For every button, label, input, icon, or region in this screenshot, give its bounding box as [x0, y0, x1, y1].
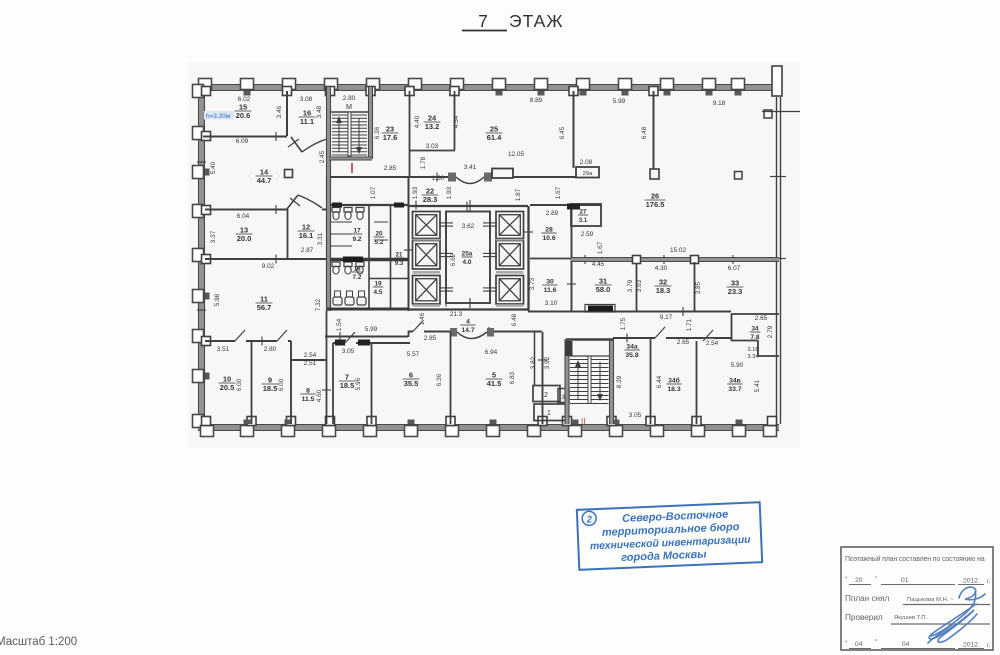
- svg-text:2.45: 2.45: [319, 150, 326, 163]
- svg-text:11.6: 11.6: [544, 287, 557, 294]
- svg-text:6.36: 6.36: [436, 373, 443, 386]
- svg-text:2.85: 2.85: [384, 165, 397, 172]
- svg-text:Якушев Т.П.: Якушев Т.П.: [894, 615, 927, 621]
- svg-text:41.5: 41.5: [487, 379, 502, 388]
- svg-text:4.5: 4.5: [374, 289, 383, 296]
- svg-text:II: II: [581, 417, 585, 426]
- svg-text:2.51: 2.51: [304, 360, 317, 367]
- svg-text:28: 28: [545, 227, 553, 234]
- svg-text:Поэтажный план составлен по со: Поэтажный план составлен по состоянию на: [845, 555, 985, 563]
- svg-text:2.08: 2.08: [580, 159, 593, 166]
- svg-text:35.8: 35.8: [625, 352, 638, 359]
- svg-text:2012: 2012: [963, 578, 978, 585]
- svg-text:3.73: 3.73: [529, 277, 536, 290]
- svg-text:ЭТАЖ: ЭТАЖ: [509, 11, 564, 31]
- svg-text:34а: 34а: [626, 344, 638, 351]
- svg-text:6.00: 6.00: [278, 378, 285, 391]
- svg-text:4.0: 4.0: [463, 259, 472, 266]
- svg-text:23.3: 23.3: [728, 287, 743, 296]
- svg-text:h=3.20м: h=3.20м: [206, 113, 230, 120]
- svg-text:9.2: 9.2: [353, 236, 362, 243]
- svg-text:6.04: 6.04: [237, 213, 250, 220]
- svg-text:3.82: 3.82: [530, 356, 537, 369]
- svg-text:10.6: 10.6: [542, 235, 555, 242]
- svg-text:1.67: 1.67: [597, 241, 604, 254]
- svg-text:3.85: 3.85: [695, 281, 702, 294]
- svg-text:4.40: 4.40: [414, 115, 421, 128]
- svg-text:1.54: 1.54: [336, 318, 343, 331]
- svg-text:8: 8: [306, 388, 310, 395]
- svg-text:3.10: 3.10: [545, 300, 558, 307]
- svg-text:2.80: 2.80: [264, 346, 277, 353]
- svg-text:7.32: 7.32: [315, 298, 322, 311]
- svg-text:3.18: 3.18: [747, 347, 758, 353]
- svg-text:3: 3: [561, 394, 565, 401]
- svg-text:3.34: 3.34: [747, 354, 759, 360]
- svg-text:34: 34: [751, 326, 759, 333]
- svg-text:16.1: 16.1: [299, 231, 314, 240]
- svg-text:11.1: 11.1: [300, 117, 314, 126]
- svg-text:3.05: 3.05: [342, 348, 355, 355]
- svg-text:01: 01: [901, 577, 909, 584]
- svg-text:5.90: 5.90: [731, 362, 744, 369]
- svg-text:61.4: 61.4: [487, 133, 502, 142]
- svg-text:6.02: 6.02: [238, 96, 251, 103]
- svg-text:9.02: 9.02: [262, 263, 275, 270]
- svg-text:2: 2: [544, 392, 548, 399]
- svg-text:3.92: 3.92: [544, 356, 551, 369]
- svg-text:1.93: 1.93: [412, 186, 419, 199]
- svg-text:1.07: 1.07: [370, 186, 377, 199]
- svg-text:М: М: [346, 102, 352, 111]
- svg-text:3.79: 3.79: [627, 279, 634, 292]
- svg-text:56.7: 56.7: [257, 303, 272, 312]
- svg-text:2.54: 2.54: [304, 352, 317, 359]
- svg-text:4.45: 4.45: [592, 261, 605, 268]
- svg-text:8.39: 8.39: [616, 375, 623, 388]
- svg-text:18.3: 18.3: [667, 386, 680, 393]
- svg-text:6.09: 6.09: [236, 138, 249, 145]
- svg-text:3.05: 3.05: [629, 412, 642, 419]
- svg-text:29а: 29а: [583, 171, 593, 177]
- svg-text:04: 04: [855, 641, 863, 648]
- svg-text:4.60: 4.60: [316, 389, 323, 402]
- svg-text:6.36: 6.36: [374, 126, 381, 139]
- svg-text:2.80: 2.80: [343, 95, 356, 102]
- svg-text:г.: г.: [987, 642, 991, 649]
- svg-text:6.45: 6.45: [559, 126, 566, 139]
- svg-text:18.3: 18.3: [656, 286, 671, 295]
- svg-text:9.17: 9.17: [660, 314, 673, 321]
- svg-text:3.31: 3.31: [317, 232, 324, 245]
- svg-text:2.89: 2.89: [546, 210, 559, 217]
- svg-text:3.08: 3.08: [300, 96, 313, 103]
- svg-text:1: 1: [547, 410, 551, 417]
- svg-text:6.00: 6.00: [236, 378, 243, 391]
- svg-text:3.63: 3.63: [636, 279, 643, 292]
- svg-text:20.6: 20.6: [236, 111, 251, 120]
- svg-text:2: 2: [585, 514, 592, 525]
- svg-text:14.7: 14.7: [461, 327, 474, 334]
- svg-text:04: 04: [902, 641, 910, 648]
- svg-text:2.85: 2.85: [424, 335, 437, 342]
- svg-text:5.57: 5.57: [407, 351, 420, 358]
- svg-text:4.30: 4.30: [655, 265, 668, 272]
- svg-text:6.62: 6.62: [450, 253, 457, 266]
- svg-text:6.44: 6.44: [656, 375, 663, 388]
- svg-text:7.8: 7.8: [751, 334, 760, 341]
- svg-text:17: 17: [353, 228, 361, 235]
- svg-text:20.5: 20.5: [220, 383, 235, 392]
- svg-text:5.96: 5.96: [355, 377, 362, 390]
- svg-text:4: 4: [466, 319, 470, 326]
- svg-text:2.65: 2.65: [755, 315, 768, 322]
- svg-text:5.2: 5.2: [375, 239, 384, 246]
- svg-text:2.65: 2.65: [677, 339, 690, 346]
- svg-text:2.54: 2.54: [706, 340, 719, 347]
- svg-text:6.07: 6.07: [728, 265, 741, 272]
- svg-text:6.83: 6.83: [509, 371, 516, 384]
- svg-text:3.41: 3.41: [464, 164, 477, 171]
- svg-text:6.48: 6.48: [641, 126, 648, 139]
- svg-text:20.0: 20.0: [237, 234, 252, 243]
- svg-text:2012: 2012: [963, 642, 978, 649]
- svg-text:9.18: 9.18: [713, 100, 726, 107]
- svg-text:33.7: 33.7: [728, 386, 741, 393]
- svg-text:Масштаб 1:200: Масштаб 1:200: [0, 636, 77, 648]
- svg-text:20: 20: [855, 577, 863, 584]
- svg-text:2.87: 2.87: [301, 247, 314, 254]
- svg-text:2.59: 2.59: [581, 231, 594, 238]
- svg-text:20: 20: [375, 231, 383, 238]
- svg-text:5.40: 5.40: [210, 161, 217, 174]
- svg-text:”: ”: [875, 639, 877, 646]
- svg-text:1.75: 1.75: [620, 317, 627, 330]
- svg-text:г.: г.: [987, 578, 991, 585]
- svg-text:12.05: 12.05: [508, 151, 524, 158]
- svg-text:6.48: 6.48: [511, 313, 518, 326]
- svg-text:21.3: 21.3: [450, 311, 463, 318]
- svg-text:11.5: 11.5: [302, 396, 315, 403]
- svg-text:2.79: 2.79: [767, 325, 774, 338]
- svg-text:6.94: 6.94: [485, 349, 498, 356]
- svg-text:“: “: [845, 576, 847, 583]
- svg-text:58.0: 58.0: [596, 285, 611, 294]
- svg-text:7.2: 7.2: [353, 274, 362, 281]
- svg-text:25а: 25а: [462, 251, 473, 258]
- svg-text:13.2: 13.2: [425, 122, 440, 131]
- svg-text:1.30: 1.30: [432, 175, 445, 182]
- svg-text:44.7: 44.7: [257, 176, 272, 185]
- svg-text:3.37: 3.37: [210, 230, 217, 243]
- svg-text:1.71: 1.71: [686, 318, 693, 331]
- svg-text:5.98: 5.98: [214, 293, 221, 306]
- svg-text:1.87: 1.87: [515, 188, 522, 201]
- svg-text:1.67: 1.67: [555, 186, 562, 199]
- svg-text:18: 18: [353, 266, 361, 273]
- svg-text:35.5: 35.5: [404, 379, 419, 388]
- svg-text:28.3: 28.3: [423, 195, 438, 204]
- svg-text:34б: 34б: [668, 377, 680, 385]
- svg-text:Проверил: Проверил: [845, 613, 883, 622]
- svg-text:5.99: 5.99: [613, 98, 626, 105]
- svg-text:“: “: [845, 640, 847, 647]
- svg-text:3.03: 3.03: [426, 143, 439, 150]
- svg-text:8.89: 8.89: [530, 97, 543, 104]
- svg-text:30: 30: [546, 279, 554, 286]
- svg-text:1.46: 1.46: [419, 312, 426, 325]
- svg-text:34в: 34в: [729, 378, 741, 385]
- svg-text:17.6: 17.6: [383, 133, 398, 142]
- svg-text:19: 19: [374, 281, 382, 288]
- svg-text:9.3: 9.3: [395, 261, 404, 267]
- svg-text:Пплан снял: Пплан снял: [845, 594, 889, 603]
- svg-text:18.5: 18.5: [263, 384, 278, 393]
- svg-text:15.02: 15.02: [670, 247, 686, 254]
- svg-text:”: ”: [875, 576, 877, 583]
- svg-text:5.41: 5.41: [754, 379, 761, 392]
- svg-text:3.1: 3.1: [579, 218, 588, 224]
- svg-text:3.62: 3.62: [462, 223, 475, 230]
- svg-text:3.48: 3.48: [316, 105, 323, 118]
- svg-text:7: 7: [478, 11, 488, 31]
- svg-text:4.54: 4.54: [453, 115, 460, 128]
- svg-text:3.46: 3.46: [276, 105, 283, 118]
- svg-text:1.78: 1.78: [420, 156, 427, 169]
- svg-text:18.5: 18.5: [340, 381, 355, 390]
- svg-text:5.99: 5.99: [365, 326, 378, 333]
- svg-text:1.93: 1.93: [446, 186, 453, 199]
- svg-text:3.51: 3.51: [217, 346, 230, 353]
- svg-text:176.5: 176.5: [646, 200, 665, 209]
- svg-text:Пацыкова М.Н. ~: Пацыкова М.Н. ~: [907, 597, 954, 603]
